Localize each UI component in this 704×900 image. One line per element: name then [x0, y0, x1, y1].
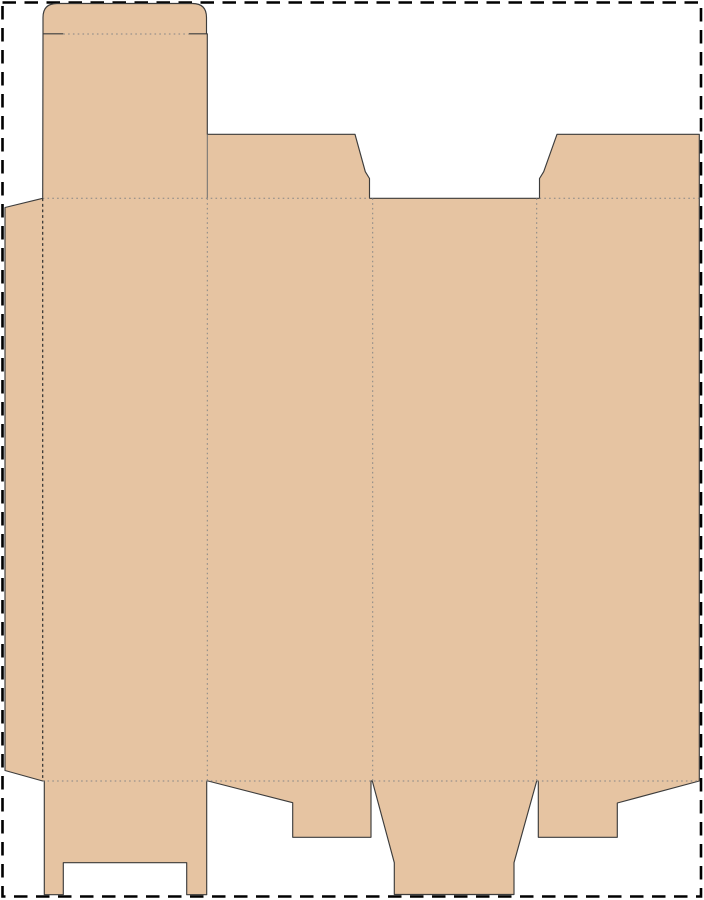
dieline-canvas: [0, 0, 704, 900]
dieline-page: [0, 0, 704, 900]
carton-blank: [5, 4, 699, 895]
